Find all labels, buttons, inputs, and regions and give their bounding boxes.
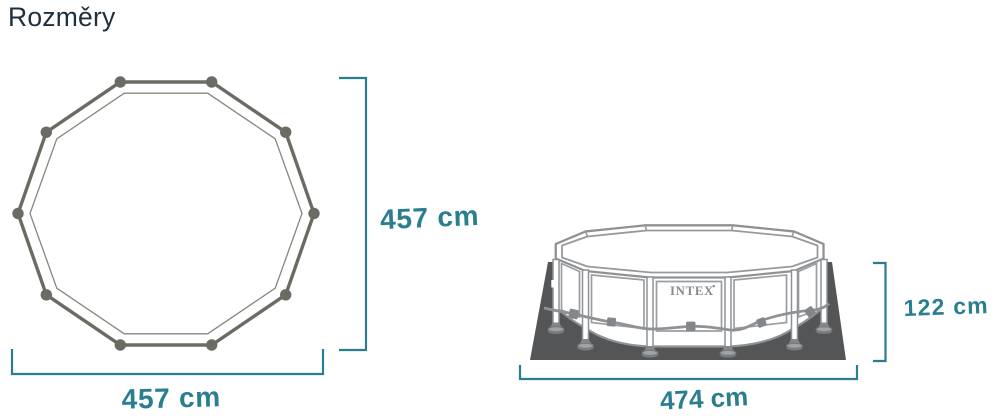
svg-text:122 cm: 122 cm	[903, 292, 989, 321]
svg-text:INTEX: INTEX	[670, 284, 714, 298]
svg-text:457 cm: 457 cm	[379, 200, 479, 235]
svg-text:474 cm: 474 cm	[659, 381, 749, 416]
svg-text:457 cm: 457 cm	[121, 381, 221, 415]
